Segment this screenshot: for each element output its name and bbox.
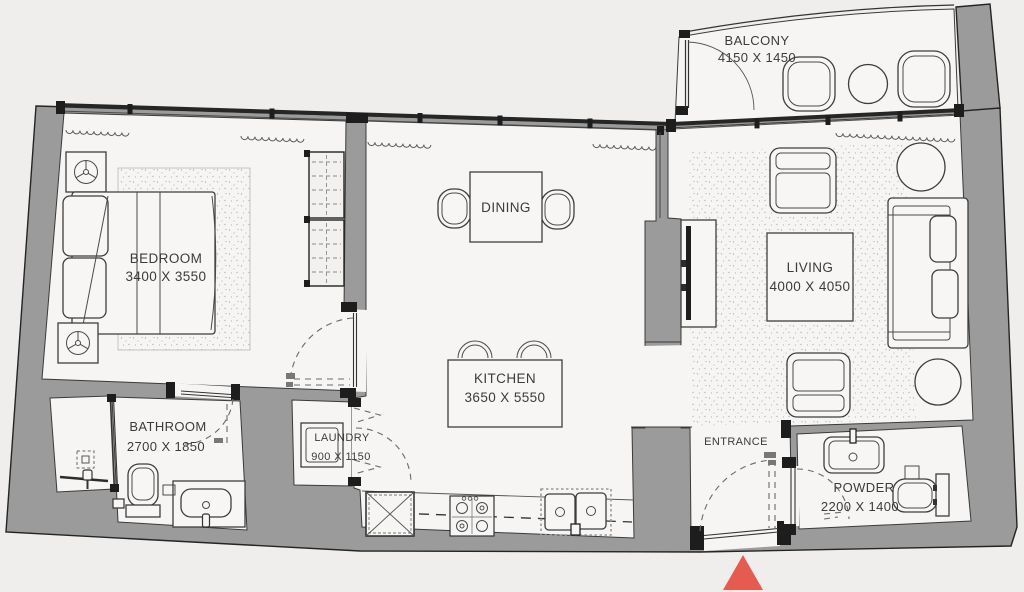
dining-label: DINING: [481, 200, 531, 215]
pillow: [63, 258, 106, 318]
tv-icon: [681, 220, 716, 327]
room-living: LIVING 4000 X 4050: [681, 143, 968, 426]
fridge-icon: [366, 492, 414, 536]
balcony-chair-icon: [783, 57, 835, 111]
entrance-label: ENTRANCE: [704, 436, 768, 448]
side-table: [897, 143, 945, 191]
armchair: [770, 148, 836, 213]
armchair: [787, 353, 850, 417]
toilet-icon: [893, 474, 949, 516]
sofa: [888, 198, 968, 348]
sink-icon: [541, 489, 611, 535]
kitchen-dims: 3650 X 5550: [465, 390, 546, 405]
laundry-label: LAUNDRY: [314, 432, 369, 444]
shower-floor: [50, 396, 114, 492]
sofa-cushion: [932, 270, 958, 318]
bedroom-label: BEDROOM: [130, 251, 203, 266]
floor-plan-page: BALCONY 4150 X 1450: [0, 0, 1024, 592]
powder-label: POWDER: [834, 480, 895, 495]
living-dims: 4000 X 4050: [770, 279, 851, 294]
sofa-cushion: [930, 216, 956, 262]
dining-chair: [438, 189, 471, 228]
floor-plan-drawing: BALCONY 4150 X 1450: [0, 0, 1024, 592]
powder-dims: 2200 X 1400: [821, 499, 899, 514]
door-jamb: [676, 106, 688, 115]
pillow: [63, 196, 108, 256]
balcony-table-icon: [849, 65, 888, 104]
stove-icon: [450, 496, 494, 536]
bathroom-label: BATHROOM: [129, 419, 206, 434]
bathroom-sink-icon: [163, 481, 245, 527]
living-label: LIVING: [787, 260, 834, 275]
balcony-chair-icon: [898, 51, 950, 107]
coffee-table: [767, 233, 853, 321]
balcony-label: BALCONY: [725, 33, 790, 48]
nightstand: [66, 152, 106, 192]
dining-chair: [541, 190, 574, 229]
kitchen-label: KITCHEN: [474, 371, 536, 386]
wardrobe: [304, 150, 344, 287]
nightstand: [58, 323, 98, 363]
laundry-dims: 900 X 1150: [311, 451, 370, 463]
side-table: [915, 359, 961, 405]
door-jamb: [679, 30, 690, 38]
bedroom-dims: 3400 X 3550: [126, 269, 207, 284]
passage-floor: [641, 345, 692, 427]
bathroom-dims: 2700 X 1850: [127, 439, 205, 454]
balcony-dims: 4150 X 1450: [718, 50, 796, 65]
